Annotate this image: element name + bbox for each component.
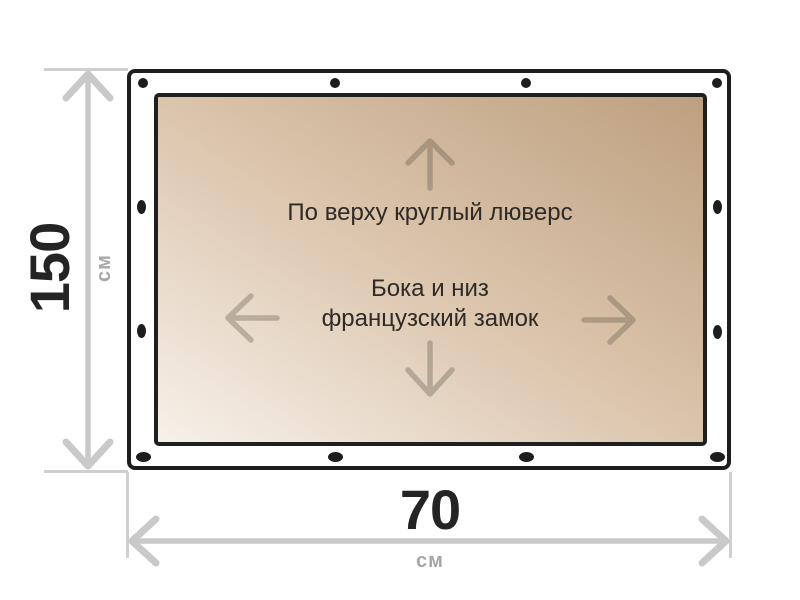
height-value-label: 150 xyxy=(19,168,79,368)
note-line-2: французский замок xyxy=(230,304,630,334)
grommet-dot xyxy=(712,78,722,88)
arrow-up-icon xyxy=(408,141,452,188)
material-arrows xyxy=(154,93,707,446)
grommet-dot xyxy=(328,452,343,462)
note-line-1: Бока и низ xyxy=(230,274,630,304)
grommet-dot xyxy=(330,78,340,88)
grommet-dot xyxy=(713,325,722,339)
grommet-dot xyxy=(713,200,722,214)
grommet-dot xyxy=(521,78,531,88)
note-top-grommets: По верху круглый люверс xyxy=(230,198,630,228)
grommet-dot xyxy=(519,452,534,462)
grommet-dot xyxy=(136,452,151,462)
arrow-down-icon xyxy=(408,343,452,394)
banner-spec-diagram: По верху круглый люверс Бока и низ франц… xyxy=(0,0,800,600)
grommet-dot xyxy=(137,200,146,214)
width-value-label: 70 xyxy=(330,481,530,539)
grommet-dot xyxy=(137,324,146,338)
grommet-dot xyxy=(138,78,148,88)
grommet-dot xyxy=(710,452,725,462)
width-unit-label: см xyxy=(330,550,530,572)
note-sides-bottom: Бока и низ французский замок xyxy=(230,274,630,334)
height-unit-label: см xyxy=(79,168,129,368)
